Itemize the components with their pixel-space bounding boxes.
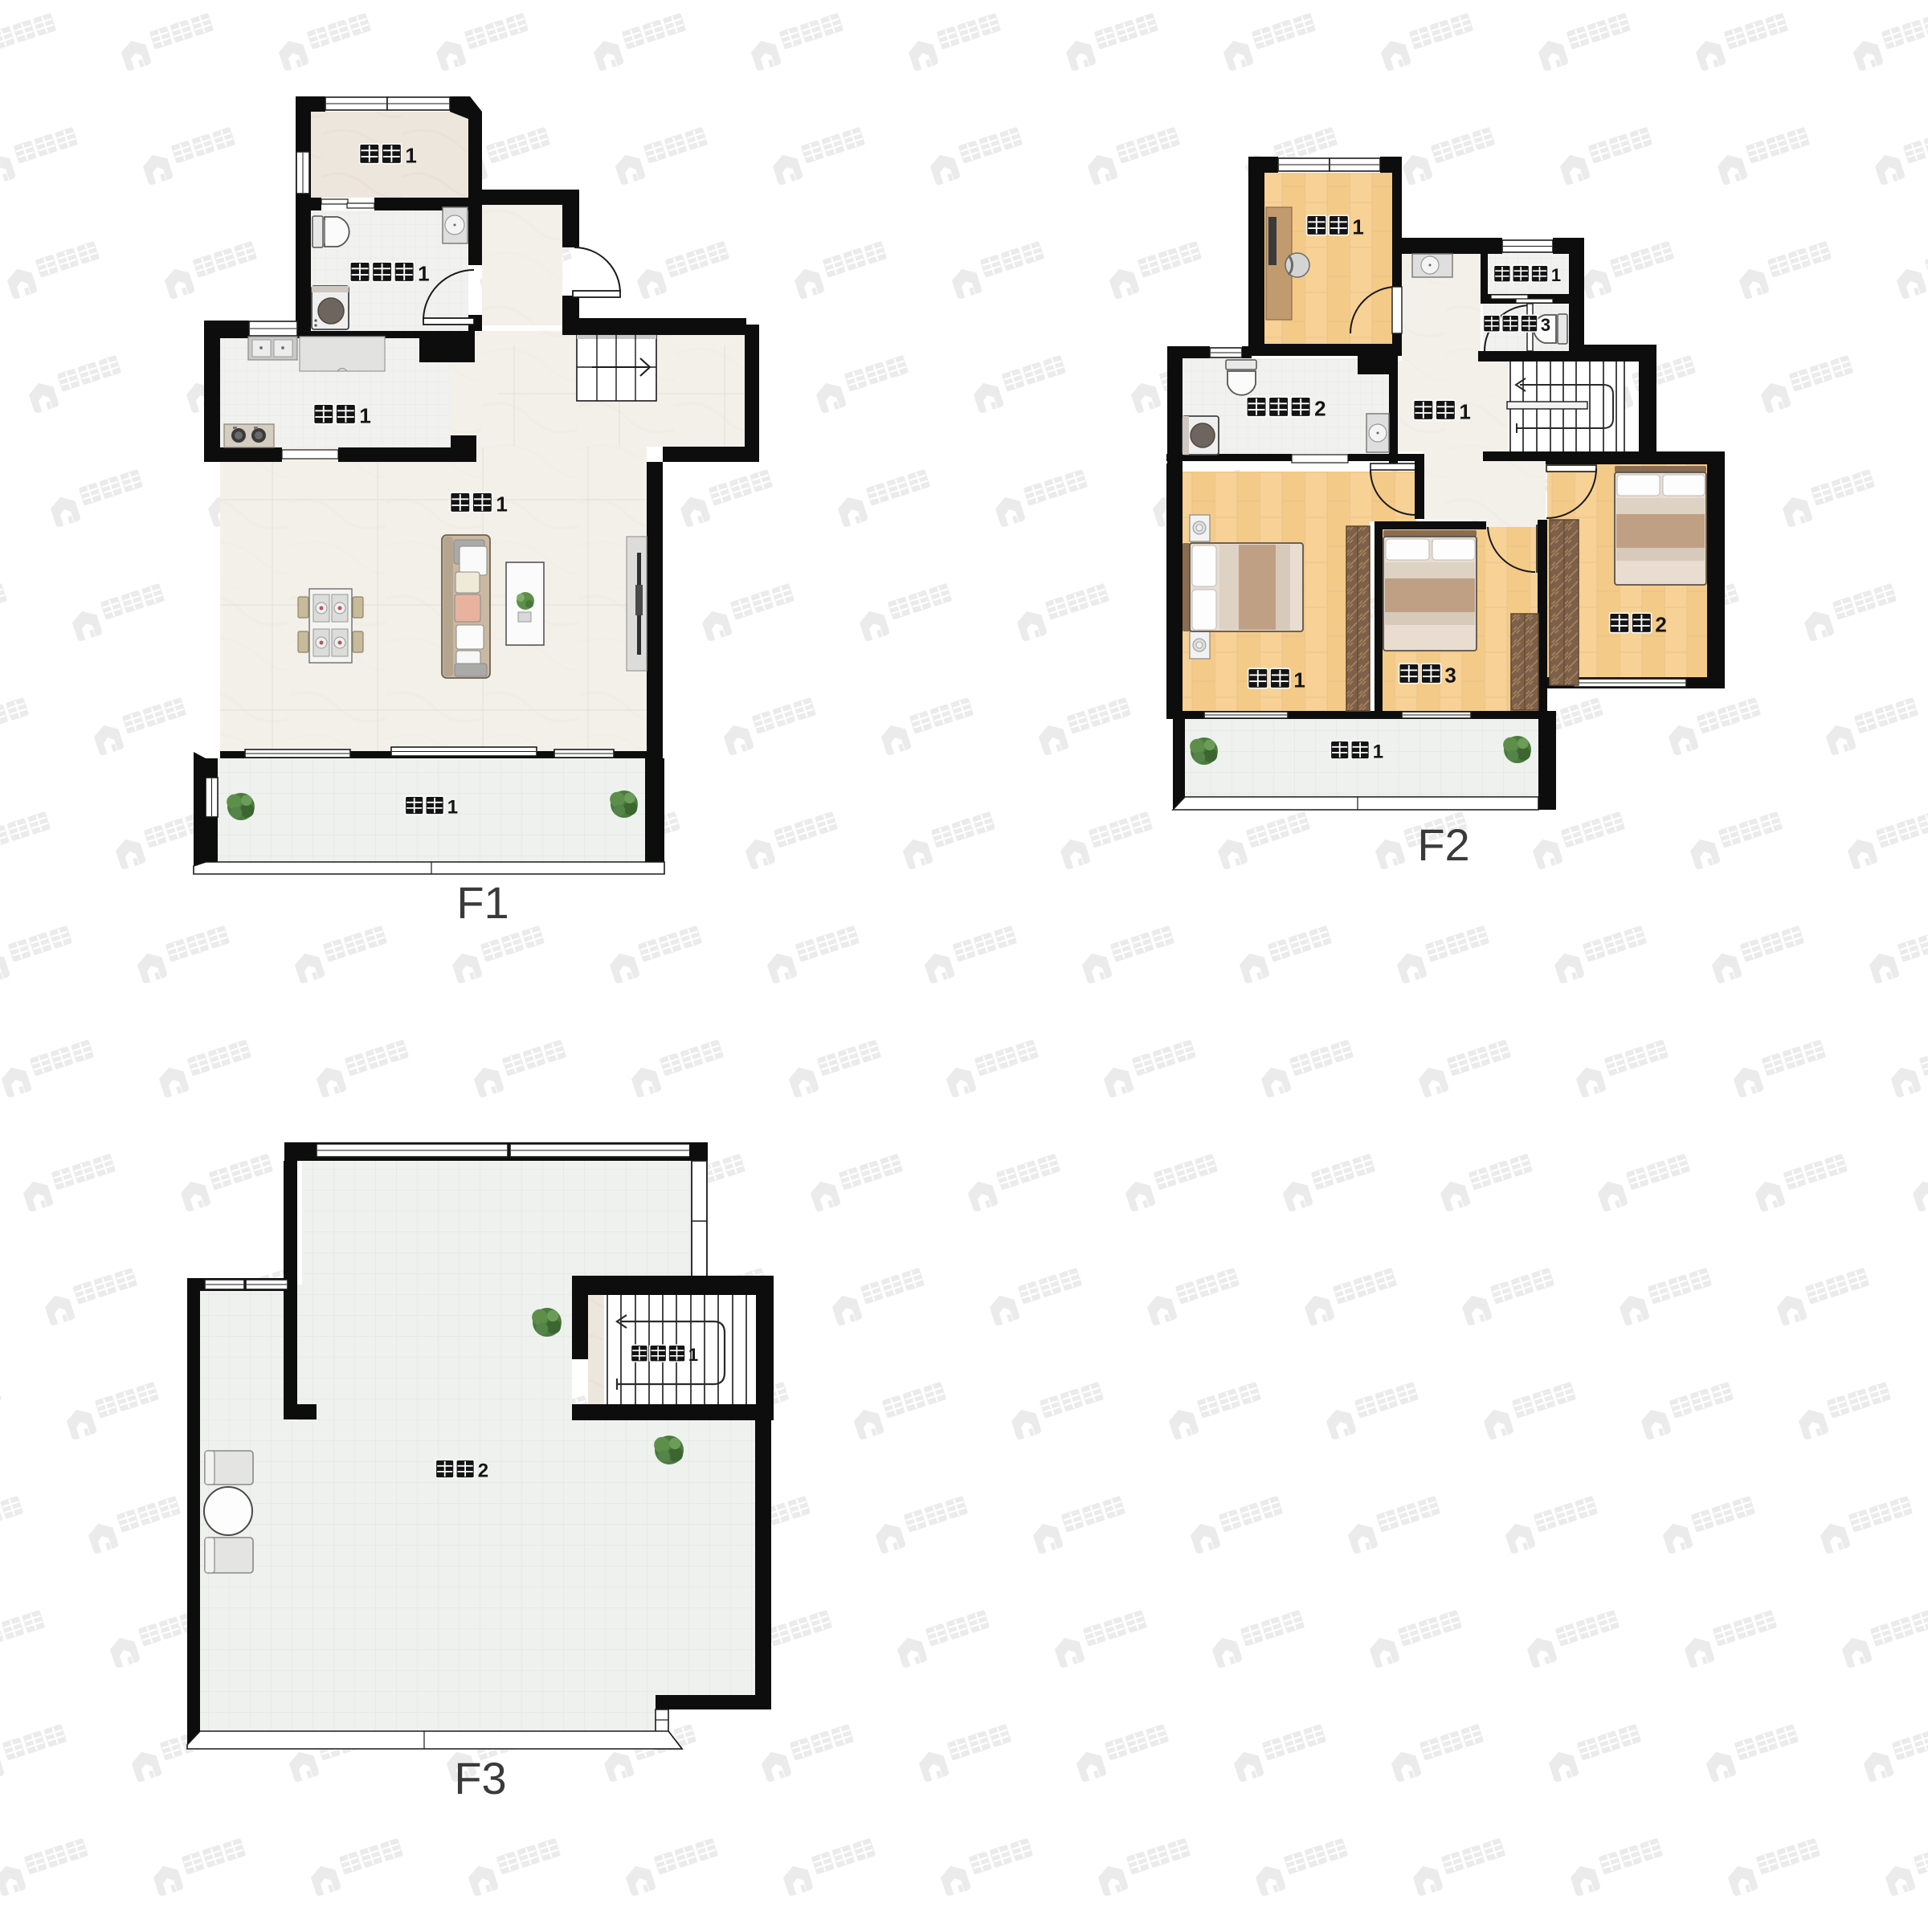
svg-text:2: 2 (478, 1460, 488, 1482)
svg-text:1: 1 (418, 261, 429, 285)
svg-text:1: 1 (1459, 399, 1470, 423)
svg-text:1: 1 (688, 1345, 698, 1365)
svg-text:1: 1 (1293, 668, 1305, 692)
svg-text:1: 1 (1373, 741, 1383, 763)
svg-text:1: 1 (496, 492, 507, 516)
svg-text:1: 1 (405, 143, 416, 167)
svg-text:1: 1 (1551, 265, 1561, 285)
svg-text:3: 3 (1541, 315, 1550, 335)
svg-text:F3: F3 (454, 1753, 506, 1803)
svg-text:2: 2 (1655, 612, 1666, 636)
svg-text:3: 3 (1444, 663, 1456, 687)
svg-text:F2: F2 (1417, 819, 1469, 870)
svg-text:F1: F1 (456, 877, 509, 928)
svg-text:1: 1 (447, 797, 458, 819)
svg-text:1: 1 (359, 403, 370, 427)
svg-text:2: 2 (1314, 396, 1325, 420)
svg-text:1: 1 (1352, 214, 1363, 239)
